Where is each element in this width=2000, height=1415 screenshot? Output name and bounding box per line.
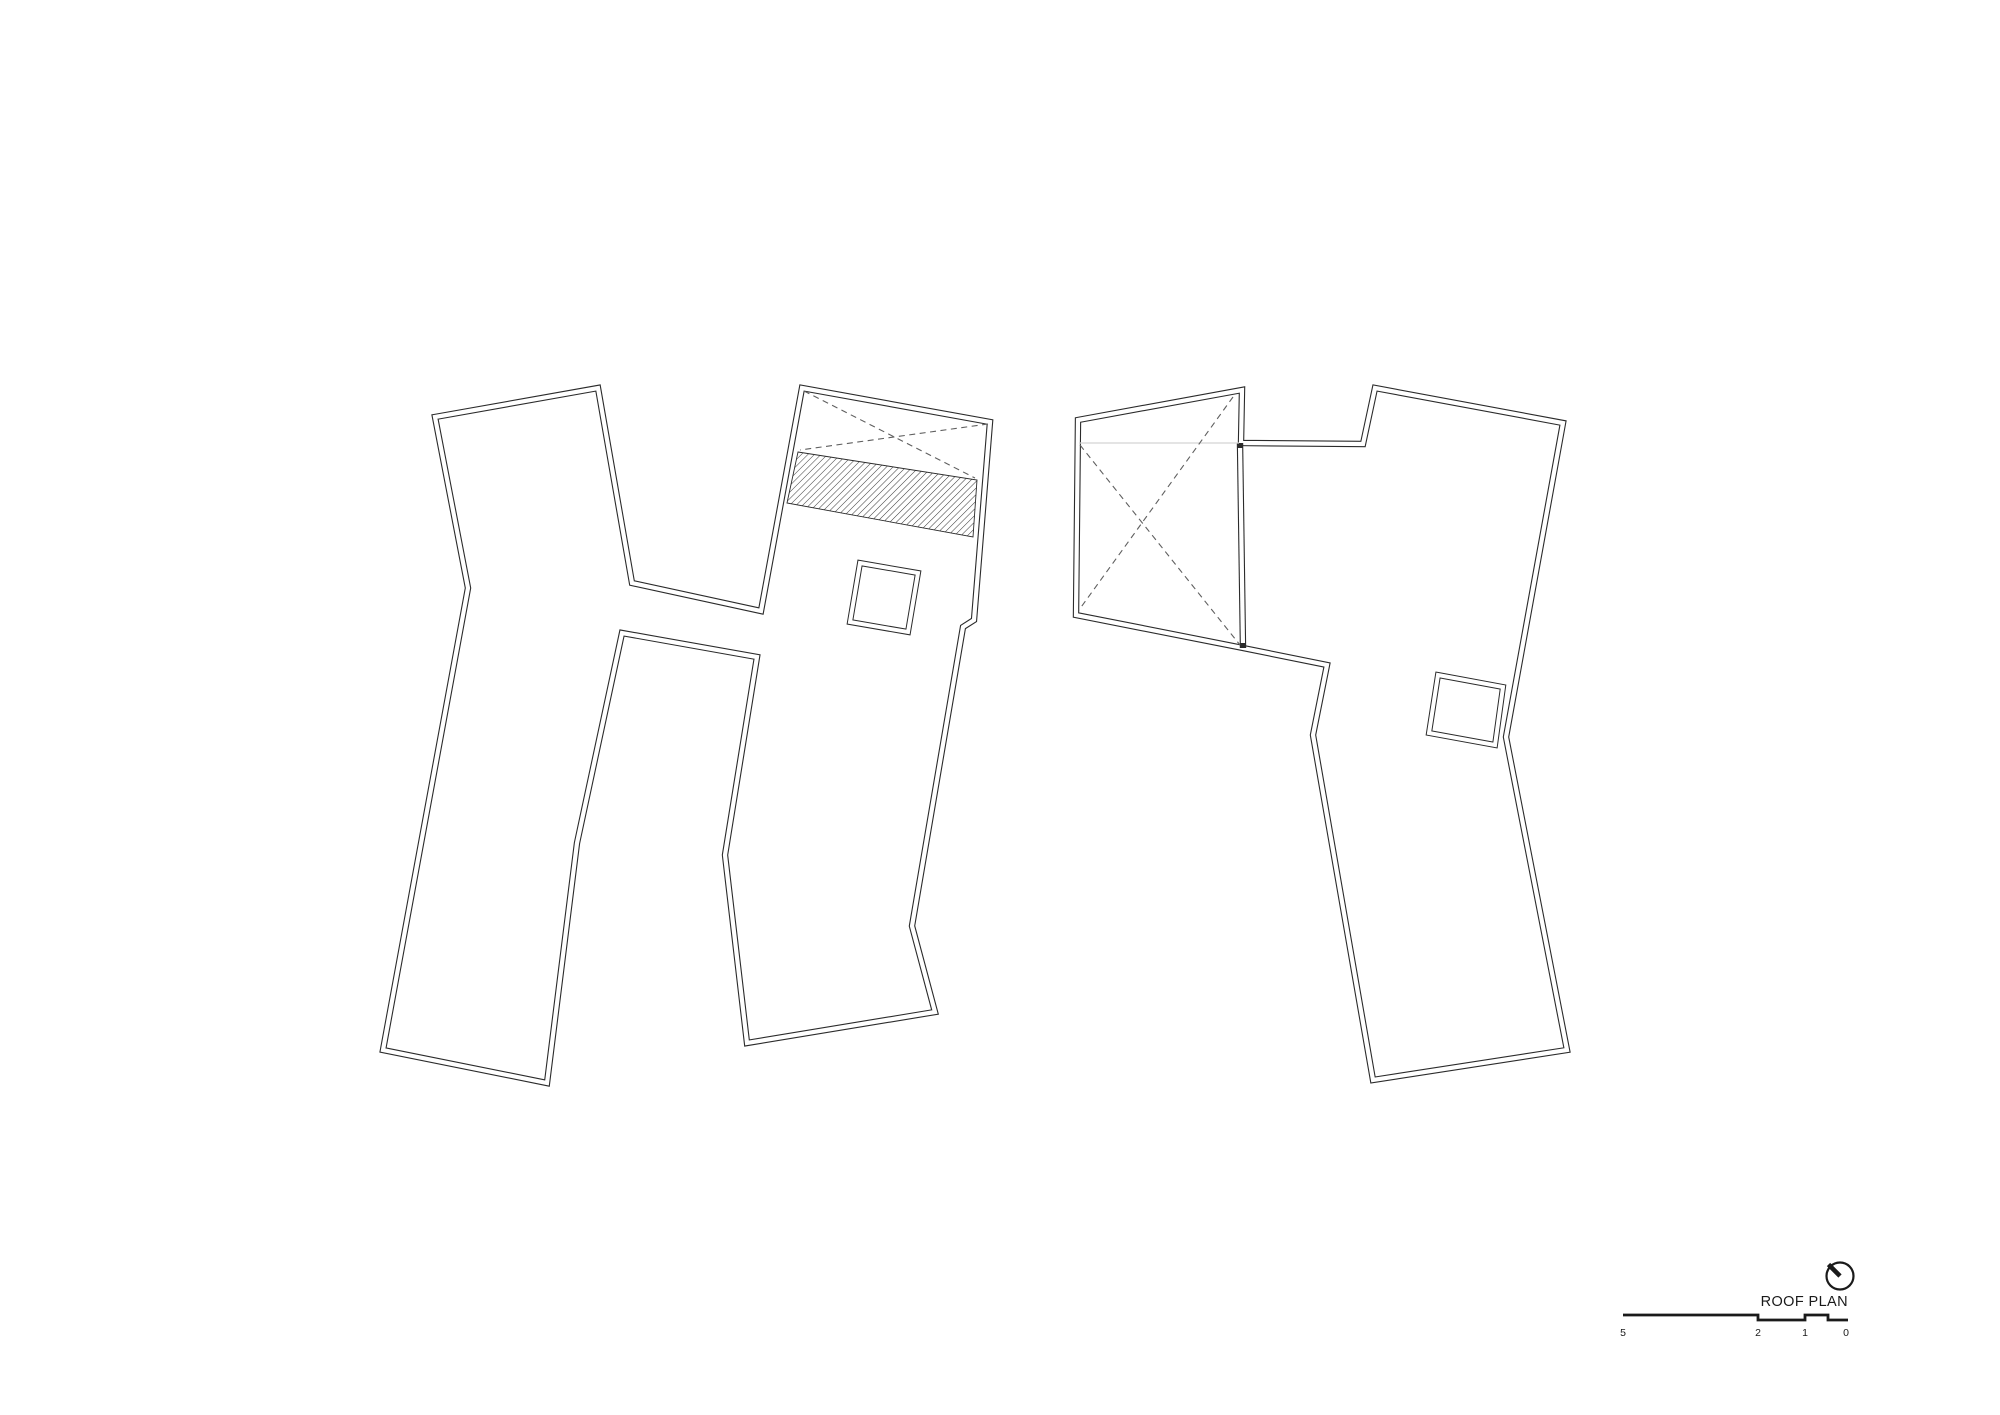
drawing-sheet: ROOF PLAN 5 2 1 0 <box>0 0 2000 1415</box>
scale-label-0: 0 <box>1843 1327 1849 1339</box>
north-arrow-icon <box>1827 1263 1854 1290</box>
scale-label-1: 1 <box>1802 1327 1808 1339</box>
scale-label-2: 2 <box>1755 1327 1761 1339</box>
north-arrow-needle <box>1829 1265 1841 1277</box>
drawing-title: ROOF PLAN <box>1761 1294 1848 1310</box>
building-west-skylight-0 <box>850 563 918 632</box>
building-east-interior-wall-gap-0 <box>1240 448 1243 643</box>
scale-bar-line <box>1623 1315 1848 1320</box>
scale-bar: 5 2 1 0 <box>1620 1315 1849 1339</box>
building-east <box>1076 388 1567 1080</box>
building-east-skylight-0 <box>1429 675 1503 745</box>
plan-geometry <box>383 388 1567 1083</box>
roof-plan-drawing: ROOF PLAN 5 2 1 0 <box>0 0 2000 1415</box>
title-block: ROOF PLAN <box>1761 1263 1854 1311</box>
building-west <box>383 388 990 1083</box>
scale-label-5: 5 <box>1620 1327 1626 1339</box>
